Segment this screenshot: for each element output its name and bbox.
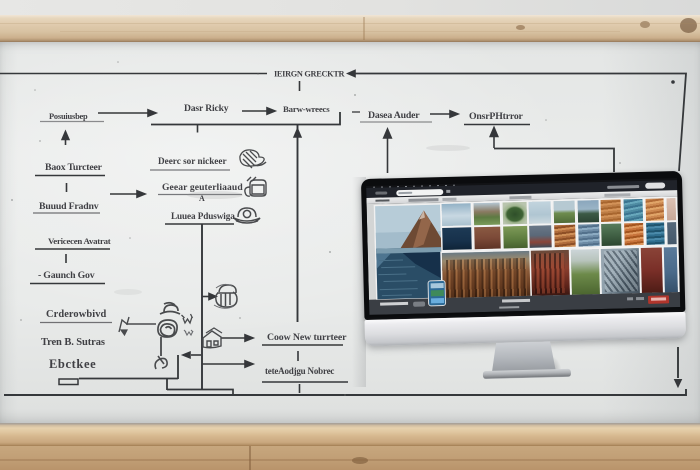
svg-text:A: A: [199, 194, 205, 203]
svg-text:Vericecen Avatrat: Vericecen Avatrat: [48, 236, 111, 246]
svg-text:Posuiusbep: Posuiusbep: [49, 112, 88, 121]
svg-text:Coow New turrteer: Coow New turrteer: [267, 332, 347, 343]
svg-text:OnsrPHtrror: OnsrPHtrror: [469, 111, 524, 122]
svg-text:Crderowbivd: Crderowbivd: [46, 309, 106, 320]
svg-text:Buuud Fradnv: Buuud Fradnv: [39, 201, 99, 212]
svg-text:Geear geuterliaaud: Geear geuterliaaud: [162, 182, 243, 193]
svg-text:Dasr Ricky: Dasr Ricky: [184, 103, 229, 114]
svg-text:Ebctkee: Ebctkee: [49, 357, 96, 371]
svg-text:- Gaunch Gov: - Gaunch Gov: [38, 270, 95, 281]
svg-text:Deerc sor nickeer: Deerc sor nickeer: [158, 156, 227, 166]
svg-text:teteAodjgu Nobrec: teteAodjgu Nobrec: [265, 366, 334, 376]
svg-text:Baox Turcteer: Baox Turcteer: [45, 162, 103, 173]
svg-text:Dasea Auder: Dasea Auder: [368, 110, 420, 121]
svg-text:Luuea Pduswiga: Luuea Pduswiga: [171, 211, 235, 221]
svg-text:Tren B. Sutras: Tren B. Sutras: [41, 337, 105, 348]
svg-text:IEIRGN GRECKTR: IEIRGN GRECKTR: [274, 70, 346, 79]
svg-text:Barw-wreecs: Barw-wreecs: [283, 104, 330, 114]
